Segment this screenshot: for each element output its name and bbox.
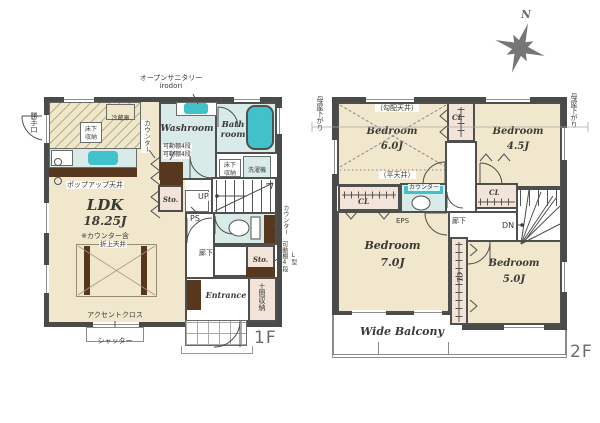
window <box>366 97 414 102</box>
window <box>486 97 530 102</box>
bathroom-label: Bath room <box>218 121 248 141</box>
eps-label: EPS <box>396 217 409 225</box>
bedroom45-name: Bedroom <box>476 126 560 138</box>
kitchen-floor-storage-box: 床下収納 <box>80 122 102 143</box>
bathroom-line2: room <box>218 131 248 141</box>
window <box>332 140 337 174</box>
fridge-label: 冷蔵庫 <box>111 115 129 122</box>
hall-shelf <box>246 267 275 277</box>
shutter-label: シャッター <box>98 337 133 345</box>
compass-icon <box>487 16 553 82</box>
floor-label-2f: 2F <box>570 343 593 363</box>
entrance-porch <box>185 320 247 346</box>
closet-vert-label: CL <box>455 272 463 283</box>
closet-left-label: CL <box>358 198 369 207</box>
kitchen-bar-counter <box>49 168 137 177</box>
stairs-down-label: DN <box>502 221 514 230</box>
window <box>93 322 139 327</box>
hall-1f-label: 廊下 <box>199 249 213 257</box>
bedroom6-size: 6.0J <box>347 141 437 153</box>
toilet-2f-counter-text: カウンター <box>408 184 440 191</box>
core-shelf-label: 可動棚4段 <box>163 152 191 159</box>
washer-label: 洗濯機 <box>248 167 266 174</box>
shoe-cabinet <box>187 280 201 310</box>
open-sanitary-callout: オープンサニタリー irodori <box>136 74 206 90</box>
stairs-2f-treads <box>520 190 558 206</box>
stove <box>51 150 73 166</box>
window <box>277 108 282 134</box>
bedroom45-size: 4.5J <box>476 141 560 153</box>
kitchen-sink <box>88 151 118 165</box>
vanity-sink <box>184 103 208 114</box>
popup-ceiling-label: ポップアップ天井 <box>66 181 124 189</box>
coffered-ceiling-label: 折上天井 <box>99 241 127 248</box>
wall-ext-right <box>562 310 567 330</box>
storage-hall-box: Sto. <box>246 245 275 269</box>
storage-core-box: Sto. <box>158 185 183 212</box>
sloped-ceiling-label: （勾配天井） <box>357 104 437 112</box>
accent-cloth-label: アクセントクロス <box>65 311 165 319</box>
sloped-ceiling-text: （勾配天井） <box>375 104 419 112</box>
shutter-box: シャッター <box>86 327 144 342</box>
bedroom5-size: 5.0J <box>470 274 558 286</box>
balcony-fence-tick <box>448 342 449 354</box>
window <box>44 265 49 293</box>
bathtub <box>246 105 274 150</box>
hall-2f-label: 廊下 <box>452 217 466 225</box>
fridge-box: 冷蔵庫 <box>106 104 135 120</box>
stairs-1f-treads <box>216 180 275 212</box>
back-door-label: 勝手口 <box>30 112 38 133</box>
stove-burner <box>54 158 62 166</box>
bedroom7-size: 7.0J <box>345 257 440 270</box>
hall-shelf-label: 可動棚4段 <box>280 241 287 272</box>
entrance-label: Entrance <box>202 291 250 300</box>
core-shelf <box>160 162 183 185</box>
window <box>414 310 442 315</box>
toilet-2f-counter-label: カウンター <box>408 185 440 192</box>
eaves-left-label: 母屋下がり <box>316 96 324 131</box>
washroom-floor-storage-box: 床下収納 <box>219 159 241 177</box>
eaves-right-label: 母屋下がり <box>570 93 578 128</box>
bedroom7-name: Bedroom <box>345 240 440 253</box>
porch-step <box>181 346 253 354</box>
window <box>504 325 544 330</box>
closet-top-label: CL <box>452 114 463 122</box>
back-door-opening <box>44 115 49 143</box>
window <box>44 203 49 233</box>
balcony-label: Wide Balcony <box>360 326 444 339</box>
core-counter-label: カウンター <box>141 120 150 153</box>
doma-storage-label: 土間収納 <box>258 283 266 311</box>
ldk-size: 18.25J <box>55 215 155 229</box>
ldk-note: ※カウンター含 <box>55 232 155 240</box>
window <box>562 262 567 292</box>
washroom-floor-storage-label: 床下収納 <box>223 162 237 177</box>
bedroom5-name: Bedroom <box>470 258 558 270</box>
open-sanitary-line2: irodori <box>136 82 206 90</box>
stove-burner <box>54 177 62 185</box>
pipe-space-label: PS <box>190 214 200 223</box>
washroom-shelf-label: 可動棚4段 <box>162 144 192 151</box>
flat-ceiling-label: （平天井） <box>357 171 437 179</box>
toilet-counter-1f <box>264 215 275 243</box>
hall-1f-horizontal <box>213 245 248 277</box>
window <box>352 310 386 315</box>
l-shape-label: L型 <box>289 252 296 265</box>
ldk-name: LDK <box>55 197 155 214</box>
stairs-up-label: UP <box>198 192 209 201</box>
open-sanitary-line1: オープンサニタリー <box>136 74 206 82</box>
floor-label-1f: 1F <box>254 329 277 349</box>
washroom-label: Washroom <box>158 124 216 134</box>
ceiling-beam <box>84 246 90 295</box>
toilet-counter-label: カウンター <box>281 205 288 235</box>
storage-hall-label: Sto. <box>253 255 268 264</box>
window <box>64 97 94 102</box>
ceiling-beam <box>141 246 147 295</box>
window <box>562 128 567 160</box>
bedroom6-name: Bedroom <box>347 126 437 138</box>
storage-core-label: Sto. <box>163 195 178 204</box>
closet-mid-label: CL <box>489 189 500 197</box>
washer-box: 洗濯機 <box>243 156 271 178</box>
window <box>234 97 260 102</box>
balcony-fence-tick <box>378 342 379 354</box>
kitchen-floor-storage-label: 床下収納 <box>84 126 98 141</box>
flat-ceiling-text: （平天井） <box>379 171 416 179</box>
floor-plan-canvas: 冷蔵庫 床下収納 床下収納 洗濯機 Sto. Sto. <box>0 0 600 423</box>
